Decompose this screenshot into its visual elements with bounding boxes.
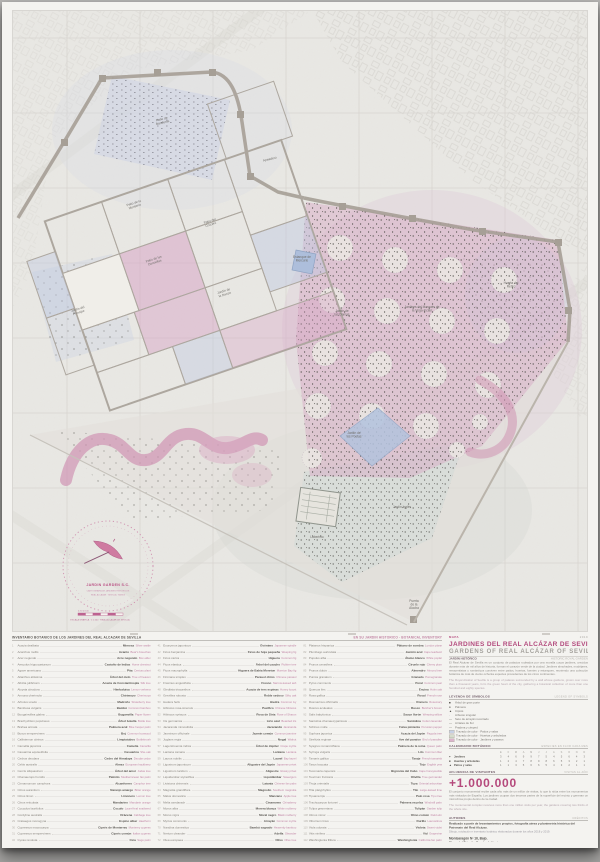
- leader-dots: [332, 749, 417, 753]
- poster-title-en: GARDENS OF REAL ALCÁZAR OF SEVILLE: [449, 648, 588, 655]
- species-english-name: Common pear: [424, 682, 442, 687]
- species-english-name: Hawthorn: [139, 820, 151, 825]
- credits-heading: AUTORES CRÉDITOS: [449, 816, 588, 821]
- species-english-name: Bay laurel: [284, 757, 296, 762]
- species-latin-name: Iris germanica: [163, 719, 182, 724]
- legend-item: Trazado de color · Jardines y paseos: [449, 738, 588, 742]
- species-english-name: Heavenly bamboo: [274, 826, 297, 831]
- species-latin-name: Acacia dealbata: [18, 644, 39, 649]
- leader-dots: [327, 793, 415, 797]
- species-english-name: White poplar: [426, 657, 442, 662]
- species-english-name: Rosemary: [429, 700, 442, 705]
- leader-dots: [187, 674, 253, 678]
- species-latin-name: Fraxinus angustifolia: [163, 682, 191, 687]
- species-latin-name: Viola odorata: [309, 826, 327, 831]
- species-english-name: Crape myrtle: [280, 744, 296, 749]
- fold-tick: [130, 633, 138, 635]
- species-latin-name: Tamarix gallica: [309, 757, 329, 762]
- species-latin-name: Tipuana tipu: [309, 795, 325, 800]
- species-english-name: Japanese spindle: [275, 644, 297, 649]
- species-english-name: Olive tree: [284, 838, 296, 842]
- species-english-name: Bearded iris: [281, 719, 296, 724]
- leader-dots: [41, 680, 101, 684]
- species-english-name: California fan palm: [419, 838, 442, 842]
- species-english-name: English yew: [427, 763, 442, 768]
- species-column-2: 41Euonymus japonicusEvónimoJapanese spin…: [158, 643, 297, 843]
- species-common-name: Boj: [121, 732, 126, 737]
- leader-dots: [183, 755, 272, 759]
- leader-dots: [52, 661, 103, 665]
- species-common-name: Acacia del Japón: [401, 732, 426, 737]
- species-english-name: Chinese fan palm: [275, 782, 297, 787]
- leader-dots: [52, 831, 110, 835]
- leader-dots: [39, 837, 128, 841]
- species-common-name: Rusco: [411, 707, 420, 712]
- species-common-name: Chirimoyo: [121, 694, 136, 699]
- species-common-name: Vid: [423, 832, 428, 837]
- fold-tick: [542, 633, 550, 635]
- leader-dots: [49, 749, 122, 753]
- species-common-name: Espino albar: [119, 820, 137, 825]
- species-common-name: Árbol del amor: [115, 769, 136, 774]
- leader-dots: [190, 824, 248, 828]
- species-english-name: Queen palm: [427, 744, 442, 749]
- species-latin-name: Cycas revoluta: [18, 838, 38, 842]
- leader-dots: [339, 799, 398, 803]
- calendar-value: 6: [527, 764, 535, 768]
- species-common-name: Alcanforero: [115, 782, 132, 787]
- species-latin-name: Ruscus aculeatus: [309, 707, 333, 712]
- leader-dots: [41, 686, 112, 690]
- species-common-name: Encina: [419, 688, 429, 693]
- calendar-value: 3: [512, 764, 520, 768]
- leader-dots: [330, 762, 419, 766]
- calendar-heading: CALENDARIO BOTÁNICO ESPECIES EN FLOR CAD…: [449, 745, 588, 750]
- leader-dots: [44, 768, 113, 772]
- species-english-name: Common ivy: [281, 700, 297, 705]
- leader-dots: [45, 737, 116, 741]
- species-english-name: Lantana: [286, 751, 296, 756]
- visitors-heading: AFLUENCIA DE VISITANTES VISITAS AL AÑO: [449, 770, 588, 775]
- species-english-name: Cherimoya: [137, 694, 151, 699]
- species-latin-name: Platanus hispanica: [309, 644, 334, 649]
- legend-swatch: [449, 738, 455, 742]
- leader-dots: [341, 743, 396, 747]
- fold-tick: [348, 633, 356, 635]
- species-common-name: Liquidámbar: [264, 776, 282, 781]
- species-latin-name: Bambusa vulgaris: [18, 707, 42, 712]
- species-common-name: Adelfa: [274, 832, 283, 837]
- legend-swatch: [449, 734, 455, 738]
- leader-dots: [187, 793, 268, 797]
- species-english-name: French tamarisk: [422, 757, 442, 762]
- leader-dots: [195, 724, 266, 728]
- species-english-name: Laurel-leaf snailseed: [125, 807, 151, 812]
- leader-dots: [331, 781, 410, 785]
- leader-dots: [40, 649, 117, 653]
- species-common-name: Buganvilla: [118, 713, 133, 718]
- species-latin-name: Citrus reticulata: [18, 801, 39, 806]
- species-english-name: Camellia: [140, 744, 151, 749]
- species-latin-name: Salix babylonica: [309, 713, 331, 718]
- title-block: MAPA 2019 JARDINES DEL REAL ALCÁZAR DE S…: [449, 636, 588, 842]
- species-common-name: Almendro: [411, 669, 425, 674]
- scale-caption: ESCALA GRÁFICA · 1:1.500 · REAL ALCÁZAR …: [70, 619, 130, 622]
- species-common-name: Olivilla: [411, 776, 421, 781]
- leader-dots: [326, 831, 421, 835]
- leader-dots: [339, 699, 414, 703]
- species-common-name: Acanto: [119, 650, 129, 655]
- species-english-name: Sweet violet: [427, 826, 442, 831]
- species-english-name: White mulberry: [278, 807, 297, 812]
- species-english-name: Italian cypress: [133, 832, 151, 837]
- species-latin-name: Livistona chinensis: [163, 782, 188, 787]
- species-english-name: Apple tree: [284, 795, 297, 800]
- species-latin-name: Lantana camara: [163, 751, 185, 756]
- species-english-name: Common myrtle: [277, 820, 297, 825]
- leader-dots: [332, 787, 411, 791]
- leader-dots: [187, 831, 273, 835]
- lead-left: JARDÍN HISTÓRICO: [449, 658, 477, 661]
- species-english-name: Blue hesper palm: [129, 726, 151, 731]
- species-common-name: Morera blanca: [256, 807, 276, 812]
- leader-dots: [46, 712, 117, 716]
- leader-dots: [52, 781, 114, 785]
- species-english-name: Grapevine: [429, 832, 442, 837]
- calendar-value: 2: [565, 764, 573, 768]
- species-common-name: Aligustre: [266, 769, 279, 774]
- species-latin-name: Ailanthus altissima: [18, 675, 43, 680]
- species-english-name: Weeping willow: [423, 713, 442, 718]
- species-common-name: Casuarina: [124, 751, 139, 756]
- species-latin-name: Arbutus unedo: [18, 700, 38, 705]
- species-english-name: Pagoda tree: [427, 732, 442, 737]
- leader-dots: [35, 793, 120, 797]
- species-latin-name: Ligustrum lucidum: [163, 769, 187, 774]
- species-english-name: Jacaranda: [283, 726, 296, 731]
- leader-dots: [45, 806, 112, 810]
- species-english-name: Monterey cypress: [129, 826, 151, 831]
- leader-dots: [183, 661, 254, 665]
- species-common-name: Santolina: [407, 719, 421, 724]
- species-common-name: Ave del paraíso: [399, 738, 421, 743]
- species-english-name: Tipu tree: [431, 795, 442, 800]
- leader-dots: [336, 643, 396, 647]
- species-latin-name: Teucrium fruticans: [309, 776, 333, 781]
- species-english-name: Camphor tree: [134, 782, 151, 787]
- species-common-name: Evónimo: [260, 644, 273, 649]
- species-latin-name: Olea europaea: [163, 838, 183, 842]
- legend-list: ■Árbol de gran porte●Palmera▲Ciprés·Arbu…: [449, 701, 588, 742]
- leader-dots: [192, 762, 245, 766]
- intro-paragraph-en: The Royal Alcázar of Seville is a group …: [449, 679, 588, 691]
- species-common-name: Jazmín azul: [406, 650, 423, 655]
- species-english-name: Oleander: [285, 832, 297, 837]
- leader-dots: [193, 743, 255, 747]
- inventory-header-left: INVENTARIO BOTÁNICO DE LOS JARDINES DEL …: [12, 636, 141, 640]
- species-english-name: Silver wattle: [136, 644, 151, 649]
- species-common-name: Nogal: [278, 738, 286, 743]
- species-english-name: Cabbage tree: [134, 813, 151, 818]
- calendar-row-label: Patios y salas: [454, 764, 497, 768]
- species-latin-name: Quercus ilex: [309, 688, 326, 693]
- species-common-name: Drácena: [120, 813, 132, 818]
- species-english-name: Silky oak: [285, 694, 296, 699]
- visitors-paragraph-es: El conjunto monumental recibe cada año m…: [449, 790, 588, 802]
- species-latin-name: Buxus sempervirens: [18, 732, 45, 737]
- species-common-name: Árbol del caucho: [256, 663, 280, 668]
- species-english-name: Rose of Sharon: [277, 713, 296, 718]
- species-latin-name: Ficus carica: [163, 657, 179, 662]
- leader-dots: [349, 718, 406, 722]
- species-english-name: Peruvian pepper: [421, 726, 442, 731]
- leader-dots: [50, 824, 97, 828]
- species-latin-name: Malus domestica: [163, 795, 186, 800]
- species-latin-name: Myrtus communis: [163, 820, 187, 825]
- leader-dots: [181, 655, 267, 659]
- species-common-name: Romero: [416, 700, 427, 705]
- leader-dots: [327, 812, 409, 816]
- species-english-name: Oriental arborvitae: [419, 782, 442, 787]
- species-english-name: Deodar cedar: [134, 757, 151, 762]
- species-common-name: Tuya: [411, 782, 418, 787]
- species-common-name: Palo rosa: [416, 795, 430, 800]
- species-english-name: Common jasmine: [275, 732, 297, 737]
- species-row: 112Washingtonia filiferaWashingtoniaCali…: [303, 837, 442, 842]
- leader-dots: [337, 837, 396, 841]
- leader-dots: [196, 774, 263, 778]
- species-latin-name: Agave americana: [18, 669, 41, 674]
- species-english-name: Bottlebrush: [137, 738, 151, 743]
- species-latin-name: Ulmus minor: [309, 813, 326, 818]
- species-common-name: Almez: [115, 763, 124, 768]
- species-english-name: Judas tree: [138, 769, 151, 774]
- calendar-value: 4: [550, 764, 558, 768]
- kicker-left: MAPA: [449, 636, 459, 639]
- species-latin-name: Cercis siliquastrum: [18, 769, 43, 774]
- species-common-name: Cinamomo: [266, 801, 282, 806]
- species-english-name: Weeping fig: [282, 650, 297, 655]
- leader-dots: [188, 712, 255, 716]
- species-common-name: Laurel: [273, 757, 282, 762]
- species-latin-name: Callistemon citrinus: [18, 738, 44, 743]
- species-common-name: Lantana: [273, 751, 285, 756]
- calendar-value: 5: [520, 764, 528, 768]
- species-latin-name: Strelitzia reginae: [309, 738, 331, 743]
- leader-dots: [51, 718, 117, 722]
- species-inventory: INVENTARIO BOTÁNICO DE LOS JARDINES DEL …: [12, 636, 442, 842]
- leader-dots: [327, 686, 417, 690]
- poster-title-es: JARDINES DEL REAL ALCÁZAR DE SEVILLA: [449, 640, 588, 648]
- species-common-name: Rosal: [417, 694, 425, 699]
- species-english-name: Laurustinus: [428, 820, 442, 825]
- species-english-name: Walnut: [288, 738, 297, 743]
- leader-dots: [181, 812, 258, 816]
- species-english-name: Moreton Bay fig: [277, 669, 297, 674]
- species-latin-name: Hedera helix: [163, 700, 180, 705]
- leader-dots: [332, 712, 402, 716]
- leader-dots: [186, 749, 271, 753]
- leader-dots: [185, 837, 274, 841]
- species-common-name: Arrayán: [264, 820, 275, 825]
- species-latin-name: Thuja orientalis: [309, 782, 329, 787]
- leader-dots: [188, 818, 262, 822]
- species-common-name: Lilo: [418, 751, 423, 756]
- species-common-name: Olivo: [275, 838, 283, 842]
- species-english-name: Cape honeysuckle: [419, 769, 442, 774]
- species-latin-name: Taxus baccata: [309, 763, 328, 768]
- species-english-name: Mediterranean fan palm: [121, 776, 151, 781]
- species-english-name: Bitter orange: [135, 788, 151, 793]
- species-common-name: Falsa pimienta: [399, 726, 420, 731]
- leader-dots: [191, 730, 251, 734]
- species-latin-name: Juglans regia: [163, 738, 181, 743]
- species-common-name: Washingtonia: [398, 838, 418, 842]
- map-label: Jardín Inglés: [393, 505, 412, 509]
- species-latin-name: Sophora japonica: [309, 732, 332, 737]
- calendar-row: ▲Patios y salas113566543211: [449, 764, 588, 768]
- leader-dots: [338, 649, 404, 653]
- species-latin-name: Ficus macrophylla: [163, 669, 187, 674]
- leader-dots: [43, 705, 115, 709]
- species-latin-name: Cupressus macrocarpa: [18, 826, 49, 831]
- legend-swatch: [449, 730, 455, 734]
- leader-dots: [334, 705, 410, 709]
- species-latin-name: Morus alba: [163, 807, 178, 812]
- calendar-value: 3: [558, 764, 566, 768]
- species-latin-name: Rosa gallica: [309, 694, 325, 699]
- bottom-section: INVENTARIO BOTÁNICO DE LOS JARDINES DEL …: [12, 636, 588, 842]
- leader-dots: [46, 774, 107, 778]
- leader-dots: [180, 806, 255, 810]
- leader-dots: [42, 668, 125, 672]
- species-latin-name: Gleditsia triacanthos: [163, 688, 190, 693]
- species-latin-name: Populus alba: [309, 657, 326, 662]
- species-column-1: 1Acacia dealbataMimosaSilver wattle2Acan…: [12, 643, 151, 843]
- species-latin-name: Acanthus mollis: [18, 650, 39, 655]
- species-latin-name: Jacaranda mimosifolia: [163, 726, 193, 731]
- species-english-name: Tree germander: [422, 776, 442, 781]
- maze: [296, 487, 340, 526]
- species-english-name: Narrow-leaved ash: [273, 682, 296, 687]
- leader-dots: [337, 768, 390, 772]
- leader-dots: [333, 737, 398, 741]
- species-common-name: Bambú: [117, 707, 127, 712]
- species-english-name: Black mulberry: [278, 813, 297, 818]
- calendar-value: 6: [535, 764, 543, 768]
- species-english-name: Cotton lavender: [422, 719, 442, 724]
- species-common-name: Manzano: [269, 795, 282, 800]
- species-common-name: Ciruelo rojo: [408, 663, 425, 668]
- species-english-name: Chinese parasol: [276, 675, 296, 680]
- kicker-right: 2019: [580, 636, 588, 639]
- species-english-name: Chinese hibiscus: [275, 707, 296, 712]
- species-latin-name: Firmiana simplex: [163, 675, 186, 680]
- calendar-value: 1: [497, 764, 505, 768]
- leader-dots: [334, 661, 407, 665]
- leader-dots: [40, 799, 112, 803]
- leader-dots: [192, 686, 245, 690]
- species-english-name: Common lilac: [425, 751, 442, 756]
- species-common-name: Tejo: [420, 763, 426, 768]
- leader-dots: [184, 718, 266, 722]
- species-english-name: Bottle tree: [138, 719, 151, 724]
- stamp-sub2: REAL ALCÁZAR · SEVILLA · MMXIX: [91, 594, 126, 597]
- species-latin-name: Syringa vulgaris: [309, 751, 330, 756]
- species-english-name: Mandarin orange: [130, 801, 151, 806]
- species-common-name: Cica: [129, 838, 135, 842]
- species-english-name: Strawberry tree: [132, 700, 151, 705]
- leader-dots: [43, 693, 119, 697]
- species-latin-name: Prunus dulcis: [309, 669, 327, 674]
- species-english-name: Rubber tree: [282, 663, 297, 668]
- species-english-name: Butcher's broom: [422, 707, 442, 712]
- species-common-name: Sauce llorón: [403, 713, 421, 718]
- species-latin-name: Morus nigra: [163, 813, 179, 818]
- calendar-table: EFMAMJJASOND●Jardines346997545643■Huerta…: [449, 751, 588, 768]
- species-latin-name: Punica granatum: [309, 675, 332, 680]
- species-latin-name: Vitis vinifera: [309, 832, 325, 837]
- leader-dots: [182, 699, 269, 703]
- species-english-name: Box elder: [139, 657, 151, 662]
- species-latin-name: Nerium oleander: [163, 832, 185, 837]
- leader-dots: [330, 818, 415, 822]
- leader-dots: [38, 655, 116, 659]
- species-english-name: Sago palm: [137, 838, 150, 842]
- calendar-value: 1: [505, 764, 513, 768]
- species-latin-name: Acer negundo: [18, 657, 37, 662]
- leader-dots: [187, 693, 262, 697]
- inventory-header-right: EN SU JARDÍN HISTÓRICO · BOTANICAL INVEN…: [354, 636, 443, 640]
- species-common-name: Mandarino: [113, 801, 128, 806]
- species-common-name: Mimosa: [123, 644, 134, 649]
- species-english-name: Tree of heaven: [132, 675, 151, 680]
- species-common-name: Álamo blanco: [405, 657, 425, 662]
- leader-dots: [328, 824, 414, 828]
- species-latin-name: Citrus limon: [18, 795, 34, 800]
- species-latin-name: Ficus elastica: [163, 663, 181, 668]
- species-latin-name: Cedrus deodara: [18, 757, 40, 762]
- species-english-name: Common bamboo: [128, 707, 150, 712]
- species-english-name: Century plant: [134, 669, 151, 674]
- map-label: Laberinto: [310, 535, 324, 539]
- leader-dots: [334, 806, 413, 810]
- leader-dots: [328, 655, 404, 659]
- species-latin-name: Camellia japonica: [18, 744, 42, 749]
- species-latin-name: Cordyline australis: [18, 813, 43, 818]
- leader-dots: [41, 787, 109, 791]
- leader-dots: [44, 812, 119, 816]
- leader-dots: [41, 755, 103, 759]
- species-latin-name: Schinus molle: [309, 726, 328, 731]
- map-label: Jardín delas Damas: [334, 309, 349, 317]
- species-english-name: Almond tree: [427, 669, 442, 674]
- species-english-name: European hackberry: [125, 763, 150, 768]
- species-latin-name: Celtis australis: [18, 763, 38, 768]
- species-english-name: Cherry plum: [427, 663, 442, 668]
- species-english-name: Honey locust: [280, 688, 296, 693]
- species-english-name: Windmill palm: [425, 801, 442, 806]
- legend-label: Trazado de color · Jardines y paseos: [456, 738, 504, 742]
- species-english-name: Sweetgum: [283, 776, 296, 781]
- leader-dots: [192, 680, 260, 684]
- map-label: Jardín delos Poetas: [347, 431, 362, 439]
- species-english-name: Silk tree: [141, 682, 151, 687]
- alcazar-map: Patio deBanderasApeaderoPatio de laMonte…: [12, 10, 588, 632]
- species-english-name: Bear's breeches: [131, 650, 151, 655]
- species-common-name: Árbol botella: [118, 719, 136, 724]
- species-english-name: Glossy privet: [280, 769, 296, 774]
